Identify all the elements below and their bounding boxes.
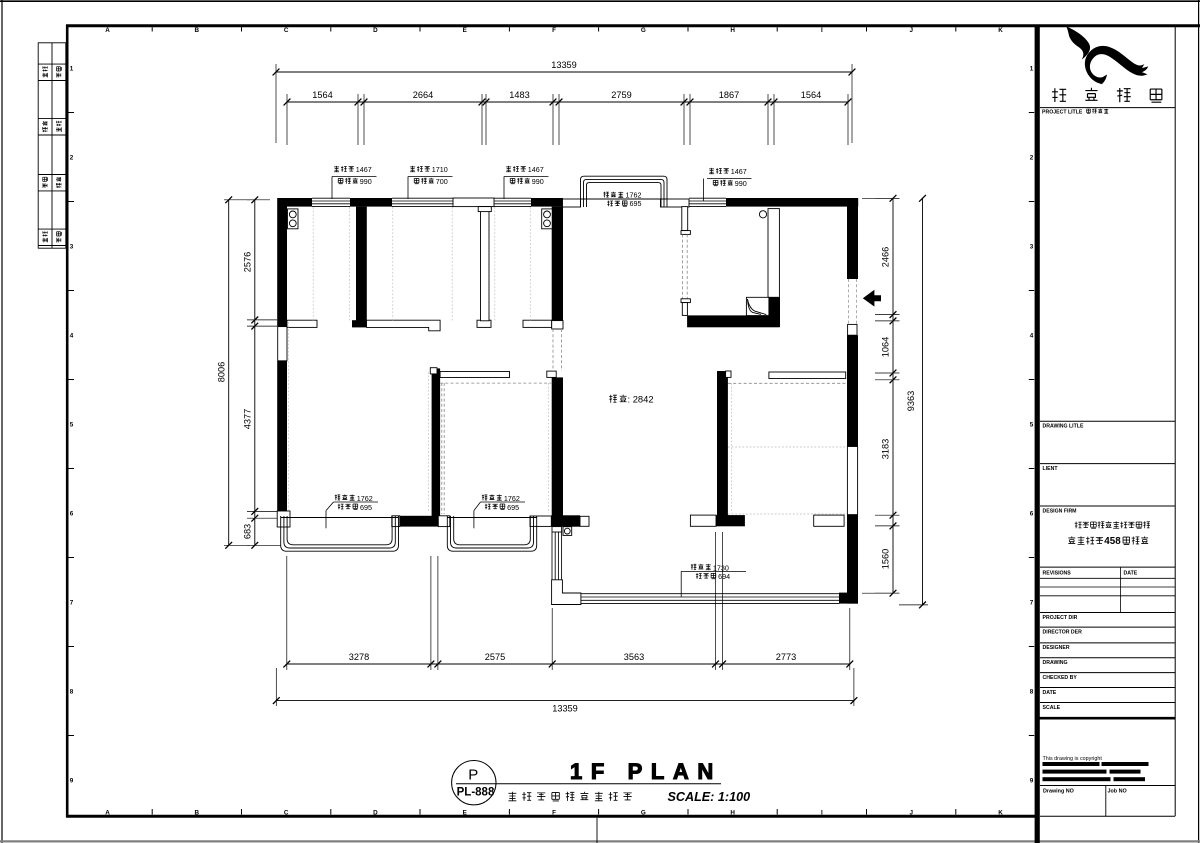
svg-text:990: 990 (735, 179, 747, 188)
svg-text:K: K (998, 810, 1003, 817)
svg-text:1762: 1762 (504, 494, 520, 503)
svg-text:5: 5 (1030, 421, 1034, 428)
svg-text:C: C (284, 810, 289, 817)
svg-text:SCALE: SCALE (1043, 705, 1061, 711)
svg-text:695: 695 (507, 503, 519, 512)
svg-text:458: 458 (1104, 536, 1121, 547)
svg-text:E: E (463, 27, 467, 34)
svg-text:7: 7 (70, 599, 74, 606)
svg-text:PROJECT DIR: PROJECT DIR (1043, 615, 1078, 621)
svg-text:4: 4 (70, 332, 74, 339)
svg-text:J: J (909, 810, 913, 817)
svg-text:2: 2 (1030, 154, 1034, 161)
svg-text:13359: 13359 (551, 60, 577, 70)
svg-text:6: 6 (70, 510, 74, 517)
svg-text:2466: 2466 (881, 247, 891, 267)
svg-text:F: F (552, 27, 556, 34)
svg-text:1: 1 (1030, 65, 1034, 72)
svg-text:I: I (821, 810, 823, 817)
svg-text:6: 6 (1030, 510, 1034, 517)
svg-text:2664: 2664 (413, 90, 433, 100)
svg-text:990: 990 (360, 177, 372, 186)
svg-text:5: 5 (70, 421, 74, 428)
svg-text:4: 4 (1030, 332, 1034, 339)
svg-text:1560: 1560 (881, 549, 891, 569)
svg-text:B: B (195, 810, 200, 817)
svg-text:E: E (463, 810, 467, 817)
svg-text:1564: 1564 (312, 90, 332, 100)
svg-text:700: 700 (436, 177, 448, 186)
svg-text:683: 683 (243, 524, 253, 539)
svg-text:2773: 2773 (776, 652, 796, 662)
svg-text:Job NO: Job NO (1108, 788, 1127, 794)
svg-text:: 2842: : 2842 (628, 394, 654, 405)
svg-text:CHECKED BY: CHECKED BY (1043, 675, 1078, 681)
svg-text:8: 8 (1030, 688, 1034, 695)
svg-text:3278: 3278 (349, 652, 369, 662)
svg-text:3563: 3563 (624, 652, 644, 662)
svg-text:7: 7 (1030, 599, 1034, 606)
svg-text:PROJECT LITLE: PROJECT LITLE (1042, 109, 1083, 115)
svg-text:694: 694 (718, 572, 730, 581)
svg-text:9363: 9363 (906, 391, 916, 411)
svg-text:8006: 8006 (216, 362, 226, 382)
svg-text:1564: 1564 (801, 90, 821, 100)
svg-text:A: A (105, 810, 110, 817)
svg-text:G: G (641, 810, 646, 817)
svg-text:1467: 1467 (528, 165, 544, 174)
svg-text:1867: 1867 (719, 90, 739, 100)
svg-text:1762: 1762 (357, 494, 373, 503)
svg-text:1762: 1762 (626, 190, 642, 199)
svg-text:1: 1 (70, 65, 74, 72)
svg-text:This drawing is copyright: This drawing is copyright (1043, 756, 1103, 762)
svg-text:990: 990 (532, 177, 544, 186)
svg-text:2759: 2759 (611, 90, 631, 100)
svg-text:9: 9 (70, 777, 74, 784)
svg-text:SCALE: 1:100: SCALE: 1:100 (668, 790, 751, 804)
svg-text:1467: 1467 (356, 165, 372, 174)
svg-text:3183: 3183 (881, 439, 891, 459)
svg-text:1F PLAN: 1F PLAN (570, 759, 722, 784)
svg-text:1483: 1483 (509, 90, 529, 100)
svg-text:DIRECTOR DER: DIRECTOR DER (1043, 629, 1083, 635)
svg-text:C: C (284, 27, 289, 34)
svg-text:1064: 1064 (881, 337, 891, 357)
svg-text:A: A (105, 27, 110, 34)
svg-text:H: H (730, 810, 735, 817)
svg-text:1467: 1467 (731, 167, 747, 176)
svg-text:D: D (373, 27, 378, 34)
svg-text:9: 9 (1030, 777, 1034, 784)
svg-text:2575: 2575 (485, 652, 505, 662)
svg-text:F: F (552, 810, 556, 817)
svg-text:13359: 13359 (552, 704, 578, 714)
svg-text:695: 695 (630, 199, 642, 208)
svg-text:2: 2 (70, 154, 74, 161)
svg-text:DATE: DATE (1043, 690, 1057, 696)
svg-text:K: K (998, 27, 1003, 34)
svg-text:DESIGN FIRM: DESIGN FIRM (1043, 508, 1077, 514)
svg-text:3: 3 (1030, 243, 1034, 250)
svg-text:Drawing NO: Drawing NO (1043, 788, 1074, 794)
svg-text:REVISIONS: REVISIONS (1043, 570, 1072, 576)
svg-text:B: B (195, 27, 200, 34)
svg-text:DRAWING: DRAWING (1043, 660, 1068, 666)
svg-text:D: D (373, 810, 378, 817)
svg-text:PL-888: PL-888 (457, 787, 495, 799)
svg-text:1710: 1710 (432, 165, 448, 174)
svg-text:P: P (468, 767, 478, 784)
svg-text:J: J (909, 27, 913, 34)
svg-text:4377: 4377 (243, 409, 253, 429)
svg-text:DATE: DATE (1124, 570, 1138, 576)
svg-text:3: 3 (70, 243, 74, 250)
svg-text:2576: 2576 (243, 252, 253, 272)
svg-text:LIENT: LIENT (1043, 466, 1059, 472)
svg-text:DESIGNER: DESIGNER (1043, 645, 1070, 651)
svg-text:DRAWING LITLE: DRAWING LITLE (1043, 424, 1084, 430)
svg-text:I: I (821, 27, 823, 34)
svg-text:695: 695 (360, 503, 372, 512)
svg-text:H: H (730, 27, 735, 34)
svg-text:8: 8 (70, 688, 74, 695)
svg-text:G: G (641, 27, 646, 34)
